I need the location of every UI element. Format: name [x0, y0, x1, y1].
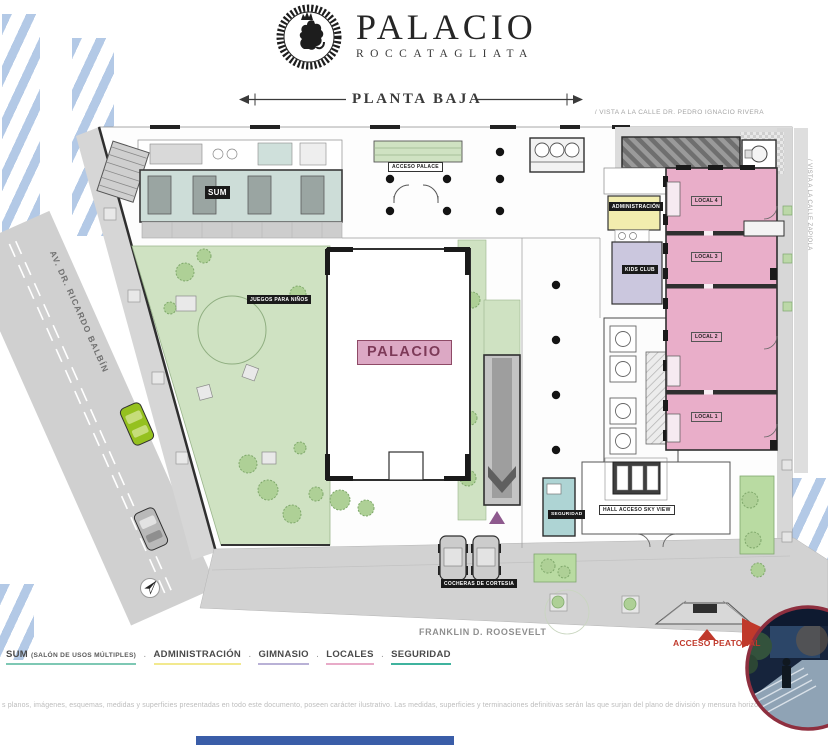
sum-room — [140, 170, 342, 222]
hall-sky-view — [582, 458, 730, 547]
footer-bar — [196, 736, 454, 745]
roof-canopy — [622, 137, 740, 168]
hall-label: HALL ACCESO SKY VIEW — [599, 505, 675, 515]
page-title: PLANTA BAJA — [352, 91, 472, 108]
locales-block — [663, 165, 784, 450]
legend: SUM (SALÓN DE USOS MÚLTIPLES) · ADMINIST… — [6, 649, 451, 665]
local-4-label: LOCAL 4 — [691, 196, 722, 206]
legend-item-gimnasio: GIMNASIO — [258, 649, 308, 665]
compass-icon — [141, 579, 160, 598]
seguridad-label: SEGURIDAD — [548, 510, 585, 519]
local-2-label: LOCAL 2 — [691, 332, 722, 342]
brand-subtitle: ROCCATAGLIATA — [356, 48, 537, 60]
kids-club-label: KIDS CLUB — [622, 265, 658, 274]
lion-crest-icon — [274, 2, 344, 72]
brand-lockup: PALACIO ROCCATAGLIATA — [356, 9, 537, 60]
brand-title: PALACIO — [356, 9, 537, 45]
acceso-palace-label: ACCESO PALACE — [388, 162, 443, 172]
ramp — [484, 300, 520, 524]
legend-item-administracion: ADMINISTRACIÓN — [154, 649, 242, 665]
acceso-peatonal-label: ACCESO PEATONAL — [673, 638, 761, 648]
elevator-bank-top — [530, 138, 584, 172]
right-sidewalk — [777, 128, 792, 547]
juegos-label: JUEGOS PARA NIÑOS — [247, 295, 311, 304]
street-label-bottom: FRANKLIN D. ROOSEVELT — [419, 627, 546, 637]
brand-logo — [274, 2, 344, 77]
street-label-top: / VISTA A LA CALLE DR. PEDRO IGNACIO RIV… — [558, 109, 764, 116]
palacio-label: PALACIO — [357, 340, 452, 365]
local-3-label: LOCAL 3 — [691, 252, 722, 262]
seguridad-room — [543, 478, 575, 536]
local-1-label: LOCAL 1 — [691, 412, 722, 422]
legend-item-locales: LOCALES — [326, 649, 374, 665]
cocheras-label: COCHERAS DE CORTESIA — [441, 579, 517, 588]
legend-item-sum: SUM (SALÓN DE USOS MÚLTIPLES) — [6, 649, 136, 665]
floor-plan-page: s planos, imágenes, esquemas, medidas y … — [0, 0, 828, 745]
administracion-label: ADMINISTRACIÓN — [609, 202, 663, 211]
legend-item-seguridad: SEGURIDAD — [391, 649, 451, 665]
sum-label: SUM — [205, 186, 230, 199]
street-label-right: / VISTA A LA CALLE ZAPIOLA — [806, 159, 812, 251]
